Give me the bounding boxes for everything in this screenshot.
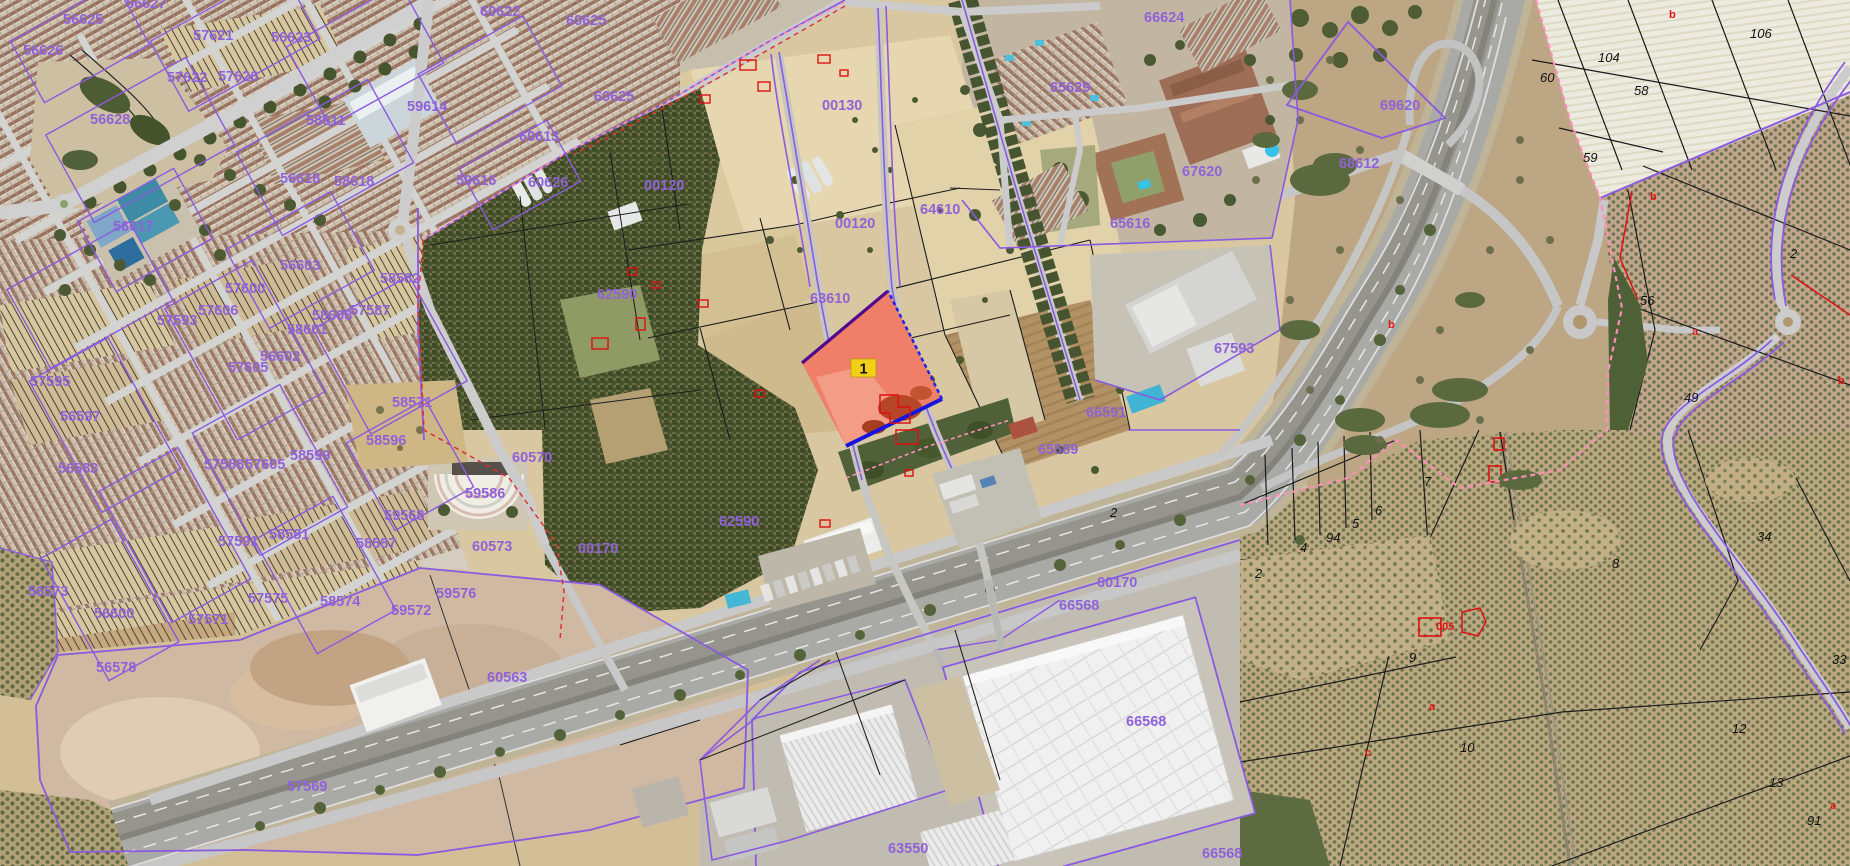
svg-text:58574: 58574	[320, 594, 360, 610]
svg-text:c: c	[1365, 747, 1371, 759]
svg-text:57571: 57571	[188, 612, 228, 628]
svg-text:58582: 58582	[380, 271, 420, 287]
svg-text:10: 10	[1460, 740, 1475, 755]
svg-text:34: 34	[1757, 529, 1771, 544]
svg-text:58: 58	[1634, 83, 1649, 98]
svg-text:a: a	[1830, 800, 1837, 812]
svg-text:56618: 56618	[280, 171, 320, 187]
svg-text:56578: 56578	[96, 660, 136, 676]
svg-text:57593: 57593	[157, 313, 197, 329]
svg-text:60625: 60625	[566, 13, 606, 29]
svg-text:58571: 58571	[392, 395, 432, 411]
svg-text:106: 106	[1750, 26, 1772, 41]
svg-text:69620: 69620	[1380, 98, 1420, 114]
svg-text:59616: 59616	[456, 173, 496, 189]
svg-text:2: 2	[1789, 246, 1798, 261]
svg-text:00170: 00170	[578, 541, 618, 557]
svg-text:5: 5	[1352, 516, 1360, 531]
svg-text:59614: 59614	[407, 99, 447, 115]
svg-text:57605: 57605	[245, 457, 285, 473]
svg-text:58581: 58581	[269, 527, 309, 543]
svg-text:57605: 57605	[228, 360, 268, 376]
svg-text:b: b	[1388, 319, 1395, 331]
svg-text:66591: 66591	[1086, 405, 1126, 421]
svg-text:57600: 57600	[225, 281, 265, 297]
svg-text:56600: 56600	[94, 606, 134, 622]
svg-text:58596: 58596	[366, 433, 406, 449]
svg-text:60563: 60563	[487, 670, 527, 686]
svg-text:67593: 67593	[1214, 341, 1254, 357]
svg-text:1: 1	[859, 362, 867, 378]
svg-text:60170: 60170	[1097, 575, 1137, 591]
svg-text:68612: 68612	[1339, 156, 1379, 172]
svg-text:59586: 59586	[465, 486, 505, 502]
svg-text:56603: 56603	[280, 258, 320, 274]
svg-text:8: 8	[1612, 556, 1620, 571]
svg-text:66568: 66568	[1202, 846, 1242, 862]
svg-text:59568: 59568	[384, 508, 424, 524]
svg-text:67620: 67620	[1182, 164, 1222, 180]
svg-text:9: 9	[1409, 650, 1416, 665]
svg-text:56573: 56573	[28, 584, 68, 600]
svg-text:56623: 56623	[271, 30, 311, 46]
svg-text:60613: 60613	[519, 129, 559, 145]
svg-text:65629: 65629	[1050, 80, 1090, 96]
svg-text:60573: 60573	[472, 539, 512, 555]
svg-text:59: 59	[1583, 150, 1597, 165]
svg-text:56625: 56625	[63, 12, 103, 28]
svg-text:57575: 57575	[248, 591, 288, 607]
svg-text:65616: 65616	[1110, 216, 1150, 232]
svg-text:91: 91	[1807, 813, 1821, 828]
svg-text:57626: 57626	[218, 69, 258, 85]
svg-text:b: b	[1669, 9, 1676, 21]
svg-text:b: b	[1838, 375, 1845, 387]
svg-text:56583: 56583	[58, 461, 98, 477]
svg-text:59576: 59576	[436, 586, 476, 602]
svg-text:00120: 00120	[835, 216, 875, 232]
svg-text:60: 60	[1540, 70, 1555, 85]
svg-text:60570: 60570	[512, 450, 552, 466]
svg-text:005: 005	[1436, 621, 1454, 633]
svg-text:57595: 57595	[30, 374, 70, 390]
svg-text:63550: 63550	[888, 841, 928, 857]
svg-text:2: 2	[1109, 505, 1118, 520]
svg-text:62590: 62590	[719, 514, 759, 530]
svg-text:13: 13	[1769, 775, 1784, 790]
svg-text:57588: 57588	[204, 457, 244, 473]
svg-text:66624: 66624	[1144, 10, 1184, 26]
svg-text:56: 56	[1640, 293, 1655, 308]
svg-text:6: 6	[1375, 503, 1383, 518]
svg-text:57587: 57587	[350, 303, 390, 319]
svg-text:60622: 60622	[480, 4, 520, 20]
svg-text:65589: 65589	[1038, 442, 1078, 458]
svg-text:60625: 60625	[594, 89, 634, 105]
svg-text:64610: 64610	[920, 202, 960, 218]
svg-text:58587: 58587	[356, 536, 396, 552]
svg-text:63610: 63610	[810, 291, 850, 307]
svg-text:56627: 56627	[126, 0, 166, 12]
svg-text:60626: 60626	[528, 175, 568, 191]
svg-text:56617: 56617	[113, 219, 153, 235]
svg-text:58599: 58599	[290, 448, 330, 464]
svg-text:00130: 00130	[822, 98, 862, 114]
svg-text:a: a	[1429, 701, 1436, 713]
svg-text:33: 33	[1832, 652, 1847, 667]
svg-text:b: b	[1650, 191, 1657, 203]
svg-text:94: 94	[1326, 530, 1340, 545]
svg-text:58618: 58618	[334, 174, 374, 190]
svg-text:12: 12	[1732, 721, 1747, 736]
svg-text:59572: 59572	[391, 603, 431, 619]
svg-text:56597: 56597	[60, 409, 100, 425]
svg-text:57621: 57621	[193, 28, 233, 44]
svg-text:57569: 57569	[287, 779, 327, 795]
svg-text:58601: 58601	[287, 322, 327, 338]
svg-text:56626: 56626	[23, 43, 63, 59]
svg-text:4: 4	[1300, 540, 1307, 555]
svg-text:66568: 66568	[1059, 598, 1099, 614]
svg-text:2: 2	[1254, 566, 1263, 581]
svg-text:57606: 57606	[198, 303, 238, 319]
svg-text:7: 7	[1424, 474, 1432, 489]
svg-text:49: 49	[1684, 390, 1698, 405]
svg-text:57622: 57622	[167, 70, 207, 86]
svg-text:a: a	[1692, 326, 1699, 338]
svg-text:58611: 58611	[306, 113, 346, 129]
svg-text:62590: 62590	[597, 287, 637, 303]
svg-text:57591: 57591	[218, 534, 258, 550]
svg-text:56628: 56628	[90, 112, 130, 128]
svg-text:66568: 66568	[1126, 714, 1166, 730]
svg-text:104: 104	[1598, 50, 1620, 65]
svg-text:00120: 00120	[644, 178, 684, 194]
